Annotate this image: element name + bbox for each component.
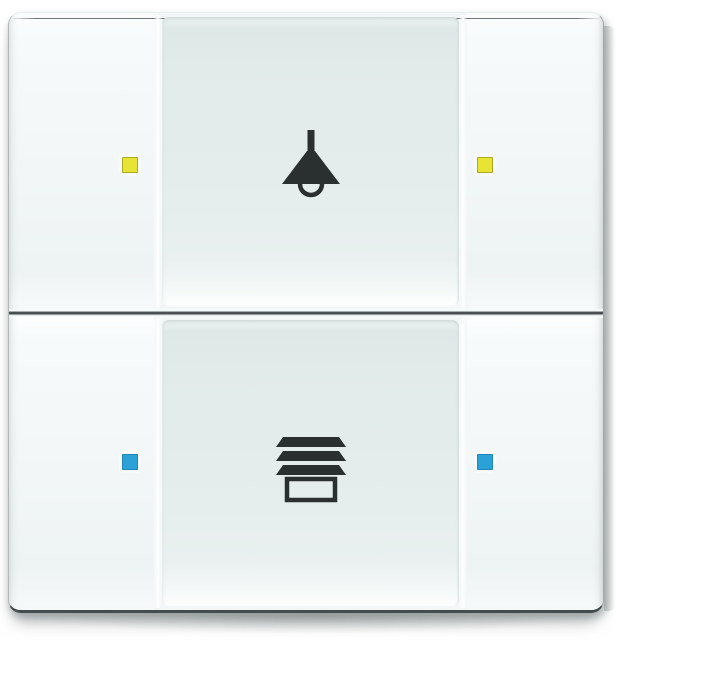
button-divider — [459, 318, 467, 608]
blinds-label-field — [162, 320, 459, 606]
light-label-field — [162, 17, 459, 306]
rocker-row-blinds — [9, 316, 603, 610]
product-photo-stage — [0, 0, 709, 695]
switch-plate — [8, 12, 604, 613]
drop-shadow — [14, 612, 606, 634]
blinds-icon — [276, 437, 346, 504]
button-divider — [459, 15, 467, 308]
pendant-lamp-icon — [282, 130, 340, 200]
rocker-row-light — [9, 13, 603, 310]
blue-status-led-right — [477, 454, 493, 470]
button-divider — [154, 15, 162, 308]
yellow-status-led-left — [122, 157, 138, 173]
button-divider — [154, 318, 162, 608]
blue-status-led-left — [122, 454, 138, 470]
module-seam — [9, 309, 603, 317]
edge-shadow — [604, 26, 615, 611]
yellow-status-led-right — [477, 157, 493, 173]
